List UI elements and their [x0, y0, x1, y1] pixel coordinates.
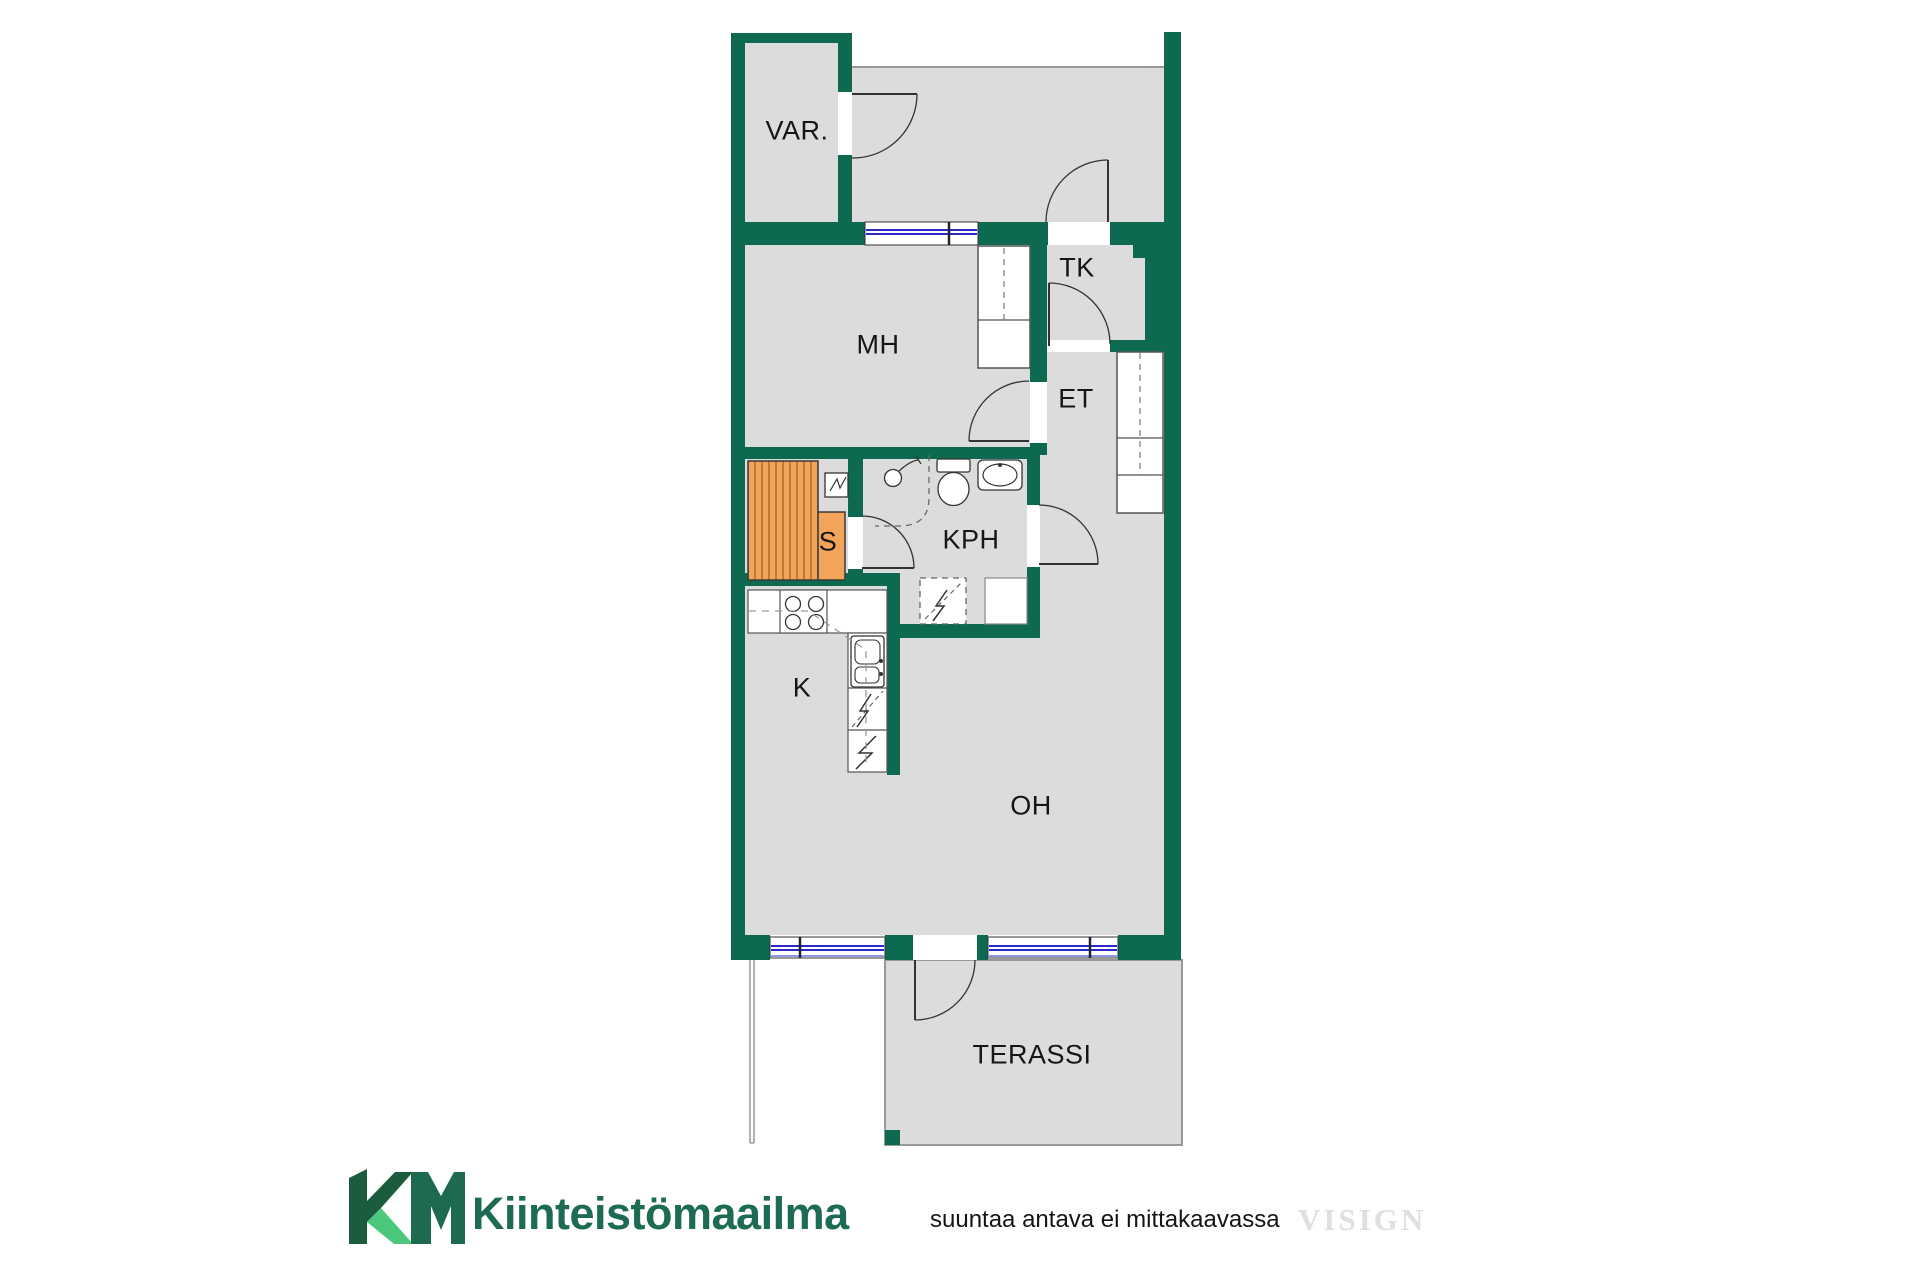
front-wall-a [731, 222, 865, 245]
tk-right-wall [1145, 245, 1181, 347]
left-outer-wall [731, 33, 745, 960]
oh-window-left [770, 937, 885, 958]
room-label-kitchen: K [793, 673, 812, 704]
right-outer-wall [1164, 32, 1181, 960]
sauna-heater-icon [825, 473, 848, 497]
kitchen-right-wall [887, 580, 900, 775]
back-wall-c [977, 935, 988, 960]
tk-notch-wall [1133, 245, 1145, 258]
mh-window [865, 222, 978, 245]
back-wall-a [731, 935, 770, 960]
back-wall-b [885, 935, 913, 960]
hallway-closet [1117, 352, 1163, 513]
room-label-kph: KPH [942, 525, 999, 556]
mh-bottom-wall [731, 447, 1040, 459]
kph-door-opening [1027, 505, 1040, 567]
kph-bottom-wall [887, 624, 1040, 638]
toilet-icon [937, 459, 970, 506]
room-label-tk: TK [1059, 253, 1095, 284]
tk-et-wall-right [1110, 340, 1164, 352]
washbasin-icon [978, 460, 1022, 490]
tk-et-wall-left [1040, 340, 1047, 352]
room-label-terrace: TERASSI [972, 1040, 1091, 1071]
back-wall-d [1118, 935, 1181, 960]
room-label-et: ET [1058, 384, 1094, 415]
tk-et-door-opening [1047, 340, 1110, 352]
sauna-bench [748, 461, 818, 580]
floor-plan-page: VAR. TK MH ET S KPH K OH TERASSI Kiintei… [0, 0, 1920, 1280]
sauna-door-opening [848, 517, 863, 569]
brand-wordmark: Kiinteistömaailma [472, 1188, 849, 1240]
wardrobe [978, 246, 1030, 368]
floor-plan-drawing [0, 0, 1920, 1280]
yard-boundary [750, 960, 754, 1143]
mh-door-opening [1030, 382, 1047, 443]
var-door-opening [838, 92, 852, 155]
mh-hall-wall-upper [1030, 245, 1047, 382]
var-right-wall-upper [838, 33, 852, 92]
var-top-wall [731, 33, 852, 43]
entry-door-opening [1048, 222, 1110, 245]
var-right-wall-lower [838, 155, 852, 222]
front-wall-b [978, 222, 1048, 245]
disclaimer-text: suuntaa antava ei mittakaavassa [930, 1206, 1280, 1234]
terrace-door-opening [913, 935, 977, 960]
room-label-var: VAR. [765, 116, 828, 147]
room-label-mh: MH [857, 330, 900, 361]
room-label-oh: OH [1010, 791, 1052, 822]
terrace-post [885, 1130, 900, 1145]
sauna-right-wall-upper [848, 453, 863, 517]
sauna-fittings [748, 461, 848, 580]
entry-porch-floor [852, 67, 1164, 222]
bathroom-cabinet [985, 578, 1027, 624]
visign-watermark: VISIGN [1298, 1202, 1426, 1238]
oh-window-right [988, 937, 1118, 958]
room-label-sauna: S [819, 527, 838, 558]
kph-right-wall-upper [1027, 447, 1040, 505]
washing-machine-reservation-icon [920, 578, 966, 624]
km-logo-icon [347, 1166, 467, 1248]
